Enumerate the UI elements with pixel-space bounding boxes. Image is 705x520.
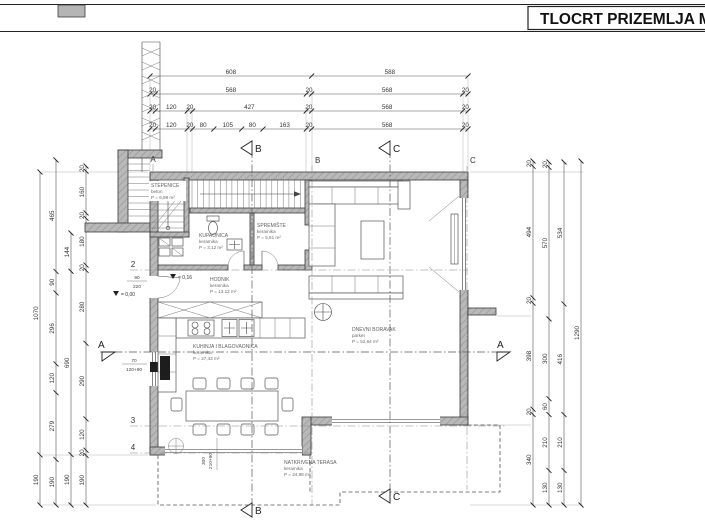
room-area: P = 13,12 m² <box>210 289 237 294</box>
dim-value: 20 <box>305 87 313 94</box>
bath-door-swing <box>228 251 244 267</box>
dim-value: 90 <box>49 278 56 286</box>
door-swing-diagonal-2 <box>429 267 459 292</box>
section-label-b-bottom: B <box>255 506 262 517</box>
dim-value: 60 <box>542 403 549 411</box>
dim-value: 300 <box>542 353 549 364</box>
dim-value: 120 <box>49 373 56 384</box>
kitchen-window-width: 70 <box>131 358 137 364</box>
wall-left <box>150 180 158 455</box>
entry-door-leaf <box>158 276 180 278</box>
toilet-tank <box>207 216 219 221</box>
dim-value: 398 <box>526 350 533 361</box>
sofa-armrest <box>398 181 410 209</box>
grid-label-3: 3 <box>131 416 136 425</box>
room-name-spremiste: SPREMIŠTE <box>257 222 287 229</box>
room-area: P = 27,43 m² <box>193 356 220 361</box>
dim-chain-top-2: 205682056820 <box>148 87 471 96</box>
grid-label-c: C <box>470 156 476 165</box>
kitchen <box>158 318 305 392</box>
chair <box>217 378 230 389</box>
dim-value: 130 <box>557 482 564 493</box>
room-area: P = 3,12 m² <box>199 245 223 250</box>
dim-value: 20 <box>305 104 313 111</box>
dim-value: 144 <box>64 246 71 257</box>
dim-value: 20 <box>462 87 470 94</box>
dim-chain-left-4: 20160201802028029012020190 <box>79 164 88 508</box>
dim-value: 80 <box>249 122 257 129</box>
dim-value: 568 <box>226 87 237 94</box>
room-area: P = 52,64 m² <box>352 339 379 344</box>
room-material: keramika <box>199 239 218 244</box>
dim-value: 534 <box>557 227 564 238</box>
dim-value: 190 <box>49 476 56 487</box>
dim-value: 20 <box>186 122 194 129</box>
dim-value: 210 <box>542 437 549 448</box>
dining-set <box>171 378 293 435</box>
dim-value: 20 <box>526 297 533 305</box>
dim-value: 120 <box>166 122 177 129</box>
dim-value: 427 <box>244 104 255 111</box>
dim-value: 160 <box>79 186 86 197</box>
dim-value: 130 <box>542 482 549 493</box>
chair <box>193 378 206 389</box>
kitchen-window-height: 120+90 <box>126 367 142 373</box>
dim-value: 20 <box>542 161 549 169</box>
dim-value: 20 <box>79 212 86 220</box>
dim-value: 20 <box>79 165 86 173</box>
dim-value: 210 <box>557 437 564 448</box>
section-label-c-top: C <box>393 144 400 155</box>
dining-table <box>186 391 278 421</box>
wall-hall-1 <box>158 265 228 270</box>
dim-value: 20 <box>526 408 533 416</box>
living-room-furniture <box>309 181 458 299</box>
wall-top <box>150 172 468 180</box>
section-label-c-bottom: C <box>393 492 400 503</box>
dim-value: 190 <box>33 474 40 485</box>
room-material: keramika <box>257 229 276 234</box>
grid-label-2: 2 <box>131 260 136 269</box>
chair <box>217 424 230 435</box>
dim-value: 180 <box>79 236 86 247</box>
sofa-left <box>309 204 335 266</box>
dim-value: 279 <box>49 420 56 431</box>
entry-door-height: 220 <box>133 284 141 290</box>
room-material: keramika <box>193 350 212 355</box>
dim-value: 570 <box>542 237 549 248</box>
hall-closet <box>158 302 262 318</box>
room-material: beton <box>151 189 163 194</box>
dim-value: 340 <box>526 454 533 465</box>
dim-value: 20 <box>186 104 194 111</box>
header-bar: TLOCRT PRIZEMLJA M <box>0 5 705 32</box>
dim-value: 290 <box>79 375 86 386</box>
entry-door-width: 90 <box>134 275 140 281</box>
dim-value: 20 <box>526 160 533 168</box>
room-area: P = 5,61 m² <box>257 235 281 240</box>
elevation-entry: = 0,00 <box>121 292 135 298</box>
dim-value: 20 <box>79 264 86 272</box>
dim-value: 20 <box>305 122 313 129</box>
niche-shelves <box>159 238 183 256</box>
room-area: P = 6,98 m² <box>151 195 175 200</box>
room-material: parket <box>352 333 365 338</box>
dim-value: 568 <box>382 104 393 111</box>
dim-value: 20 <box>79 449 86 457</box>
kitchen-tall-cabinet <box>158 318 176 392</box>
stove <box>188 320 214 336</box>
dim-chain-right-3: 534416210130 <box>557 160 566 508</box>
section-marker-b-top <box>241 141 252 155</box>
dim-value: 465 <box>49 210 56 221</box>
wall-step <box>302 417 311 455</box>
dim-value: 20 <box>149 122 157 129</box>
dim-value: 163 <box>279 122 290 129</box>
dim-chain-left-1: 1070190 <box>33 170 42 508</box>
dim-value: 568 <box>382 122 393 129</box>
dim-chain-right-2: 2057030060210130 <box>542 160 551 508</box>
dim-chain-right-1: 204942039820340 <box>526 159 535 508</box>
section-marker-c-top <box>379 141 390 155</box>
chair <box>265 378 278 389</box>
room-area: P = 24,98 m² <box>284 472 311 477</box>
sofa-bottom-back <box>309 293 403 299</box>
drawing-title: TLOCRT PRIZEMLJA M <box>540 11 705 28</box>
section-label-a-right: A <box>497 340 504 351</box>
dim-value: 588 <box>385 69 396 76</box>
floor-plan-page: TLOCRT PRIZEMLJA M 608588 205682056820 2… <box>0 0 705 520</box>
wall-stair-bottom <box>150 232 189 237</box>
dim-value: 280 <box>79 301 86 312</box>
chair <box>171 398 182 411</box>
dim-chain-top-3: 20120204272056820 <box>148 104 471 113</box>
dim-value: 690 <box>64 357 71 368</box>
dim-value: 20 <box>462 104 470 111</box>
section-marker-a-right <box>497 352 510 361</box>
dim-chain-top-4: 201202080105801632056820 <box>148 122 471 131</box>
chair <box>265 424 278 435</box>
stair-arrow-right <box>294 191 301 197</box>
terrace-window-height: 210+90 <box>208 453 214 469</box>
section-label-a-left: A <box>98 340 105 351</box>
dim-value: 416 <box>557 354 564 365</box>
dim-value: 190 <box>64 474 71 485</box>
elevation-hodnik: = 0,16 <box>178 275 192 281</box>
dim-value: 1290 <box>574 326 581 341</box>
chair <box>193 424 206 435</box>
dim-value: 105 <box>223 122 234 129</box>
header-corner-box <box>58 5 85 17</box>
grid-label-b: B <box>315 156 320 165</box>
dim-value: 296 <box>49 323 56 334</box>
elevation-triangle <box>170 274 176 279</box>
wall-bath-top <box>190 208 310 213</box>
wall-hall-2 <box>244 265 262 270</box>
sofa-top <box>309 187 403 204</box>
sofa-bottom <box>309 276 403 293</box>
dim-chain-right-4: 1290 <box>574 159 583 508</box>
floor-plan-drawing: TLOCRT PRIZEMLJA M 608588 205682056820 2… <box>0 0 705 520</box>
dim-value: 568 <box>382 87 393 94</box>
dim-value: 1070 <box>33 306 40 321</box>
dim-value: 120 <box>79 429 86 440</box>
dim-value: 494 <box>526 226 533 237</box>
dim-chain-left-3: 144690190 <box>64 231 73 508</box>
elevation-triangle <box>113 291 119 296</box>
chair <box>282 398 293 411</box>
dim-chain-top-1: 608588 <box>148 69 471 78</box>
section-marker-c-bottom <box>379 489 390 503</box>
dim-value: 120 <box>166 104 177 111</box>
room-material: keramika <box>284 466 303 471</box>
dim-value: 608 <box>226 69 237 76</box>
coffee-table <box>361 221 384 259</box>
section-marker-a-left <box>102 352 115 361</box>
dim-value: 190 <box>79 474 86 485</box>
entry-door-swing <box>158 278 180 298</box>
terrace-window-width: 300 <box>201 457 207 465</box>
dim-value: 20 <box>462 122 470 129</box>
dim-value: 80 <box>200 122 208 129</box>
section-label-b-top: B <box>255 144 262 155</box>
wall-right-stub <box>468 308 496 315</box>
store-door-swing <box>262 251 278 267</box>
room-material: keramika <box>210 283 229 288</box>
sofa-back <box>309 181 403 187</box>
grid-label-a: A <box>150 155 156 164</box>
grid-label-4: 4 <box>131 443 136 452</box>
fridge <box>160 356 170 380</box>
window-pier <box>150 362 158 372</box>
